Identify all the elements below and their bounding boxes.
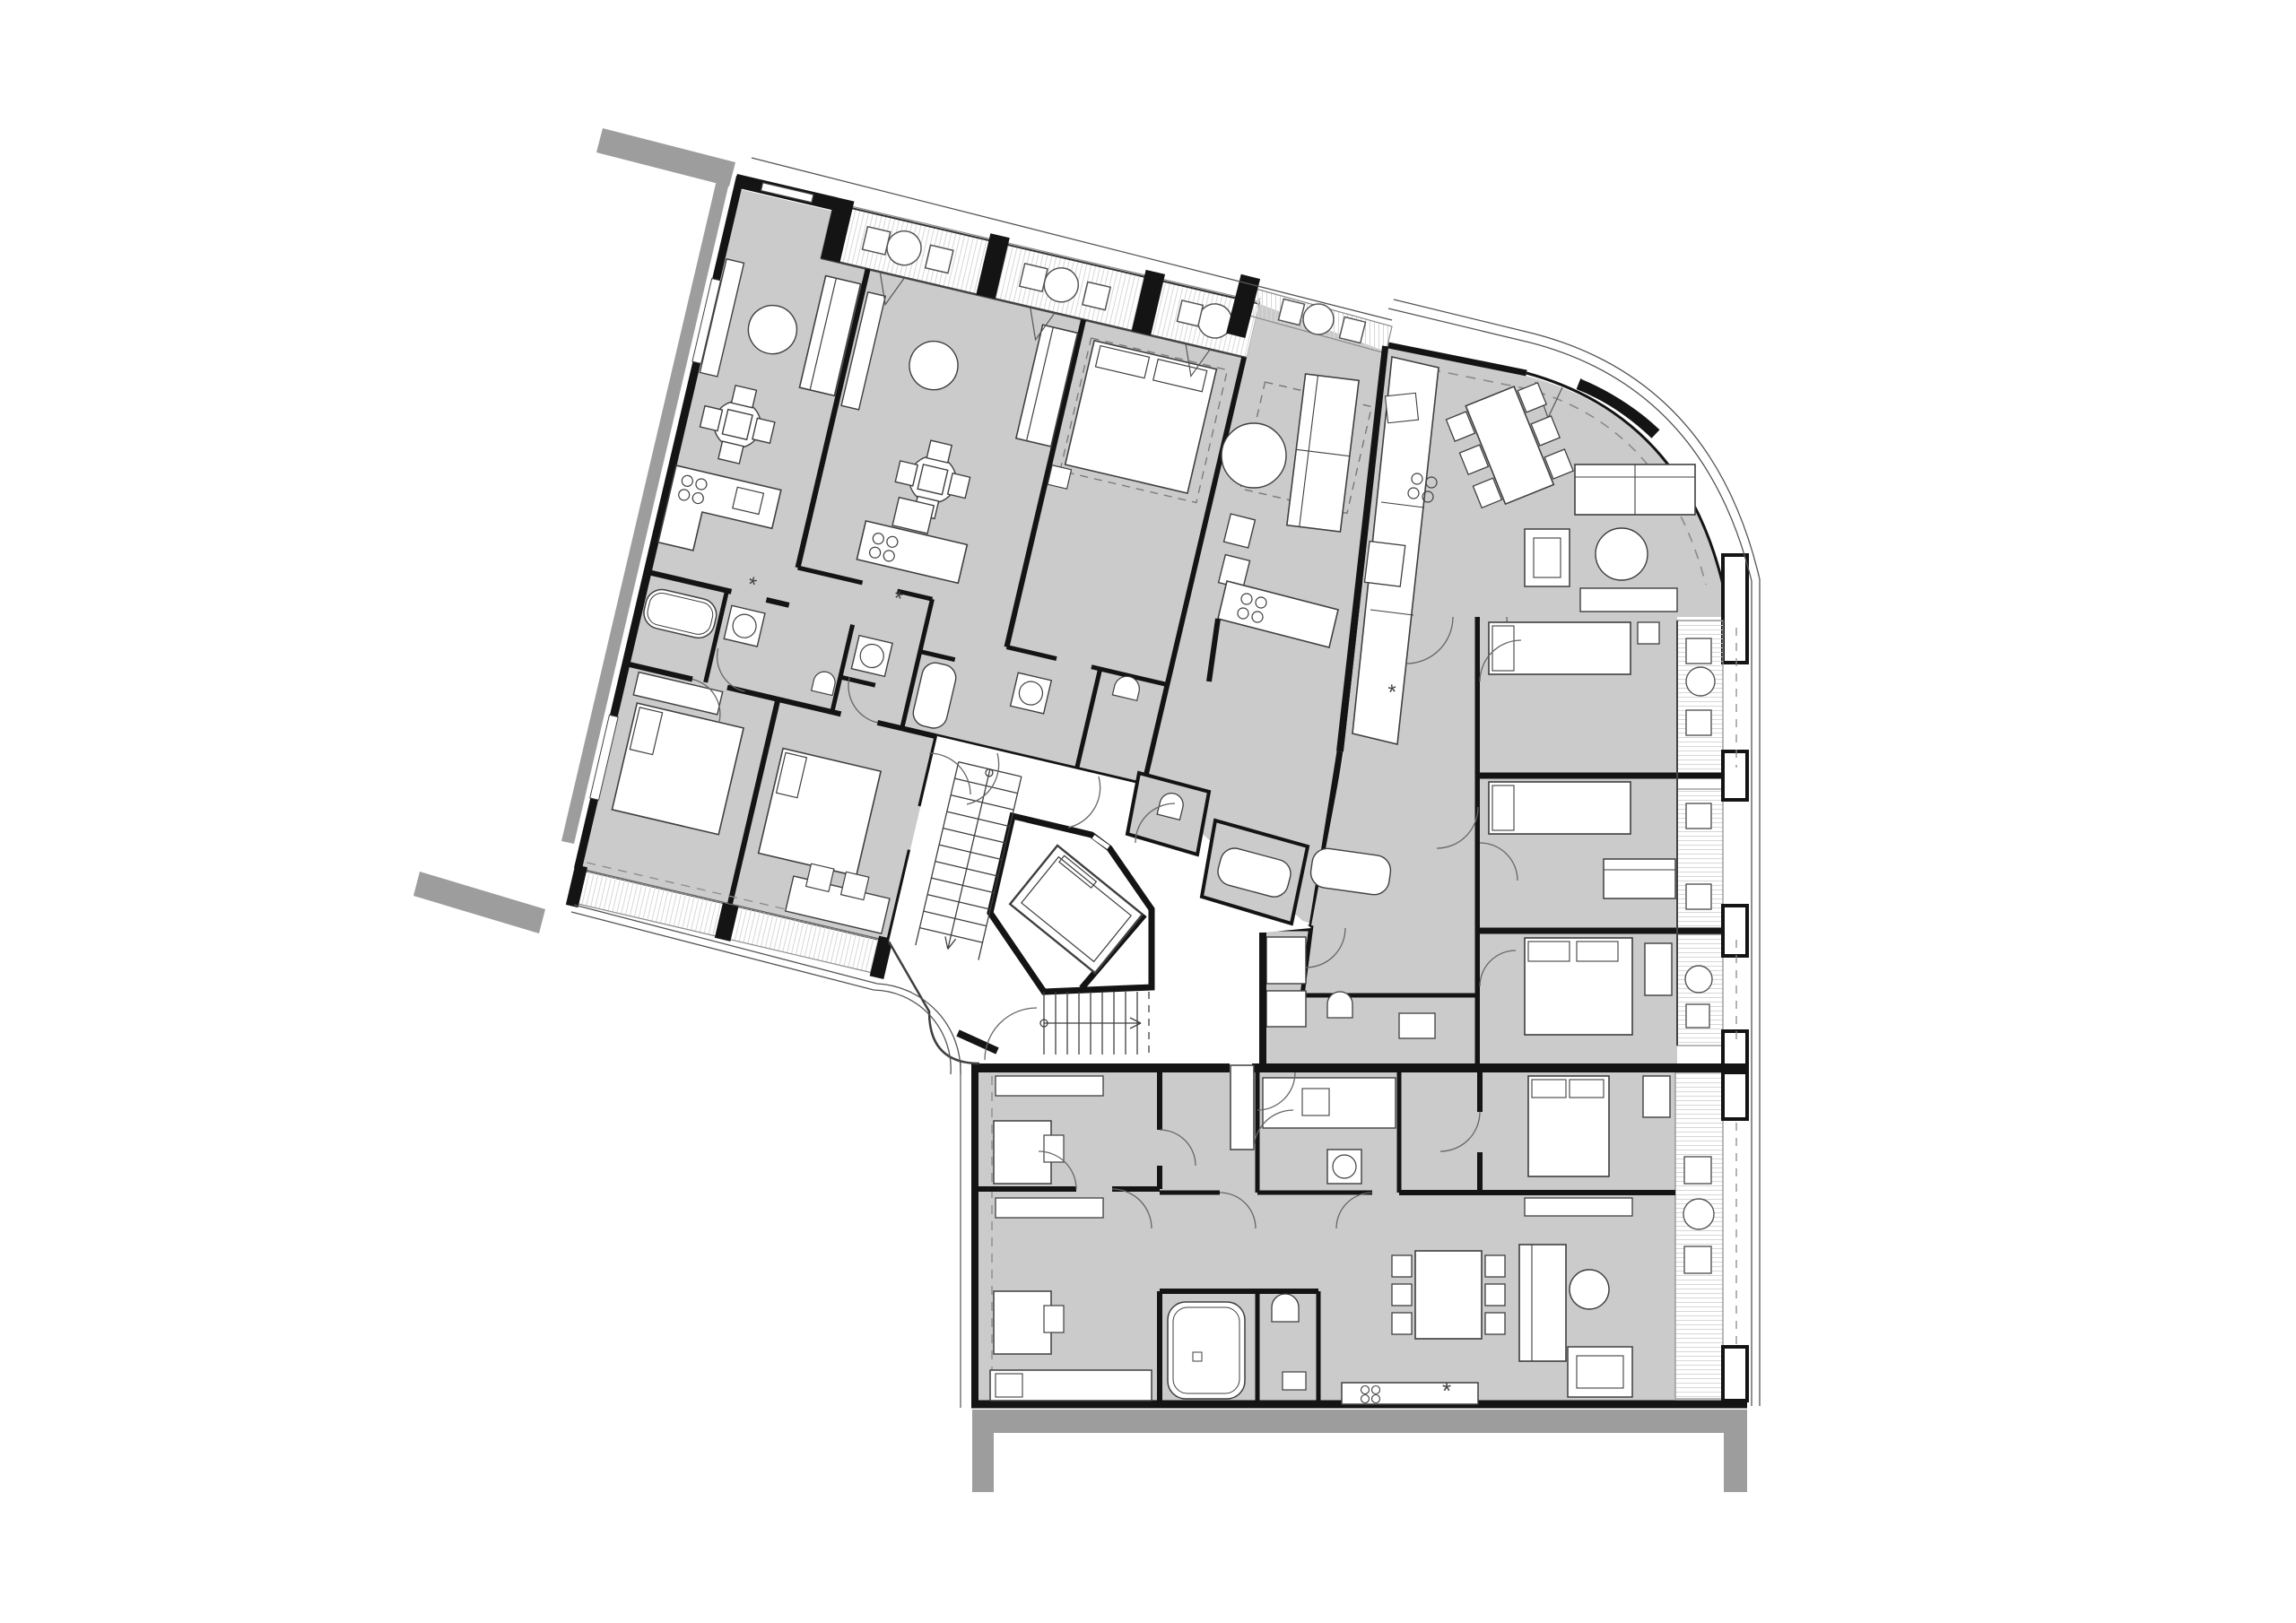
svg-text:*: * xyxy=(1442,1377,1451,1404)
